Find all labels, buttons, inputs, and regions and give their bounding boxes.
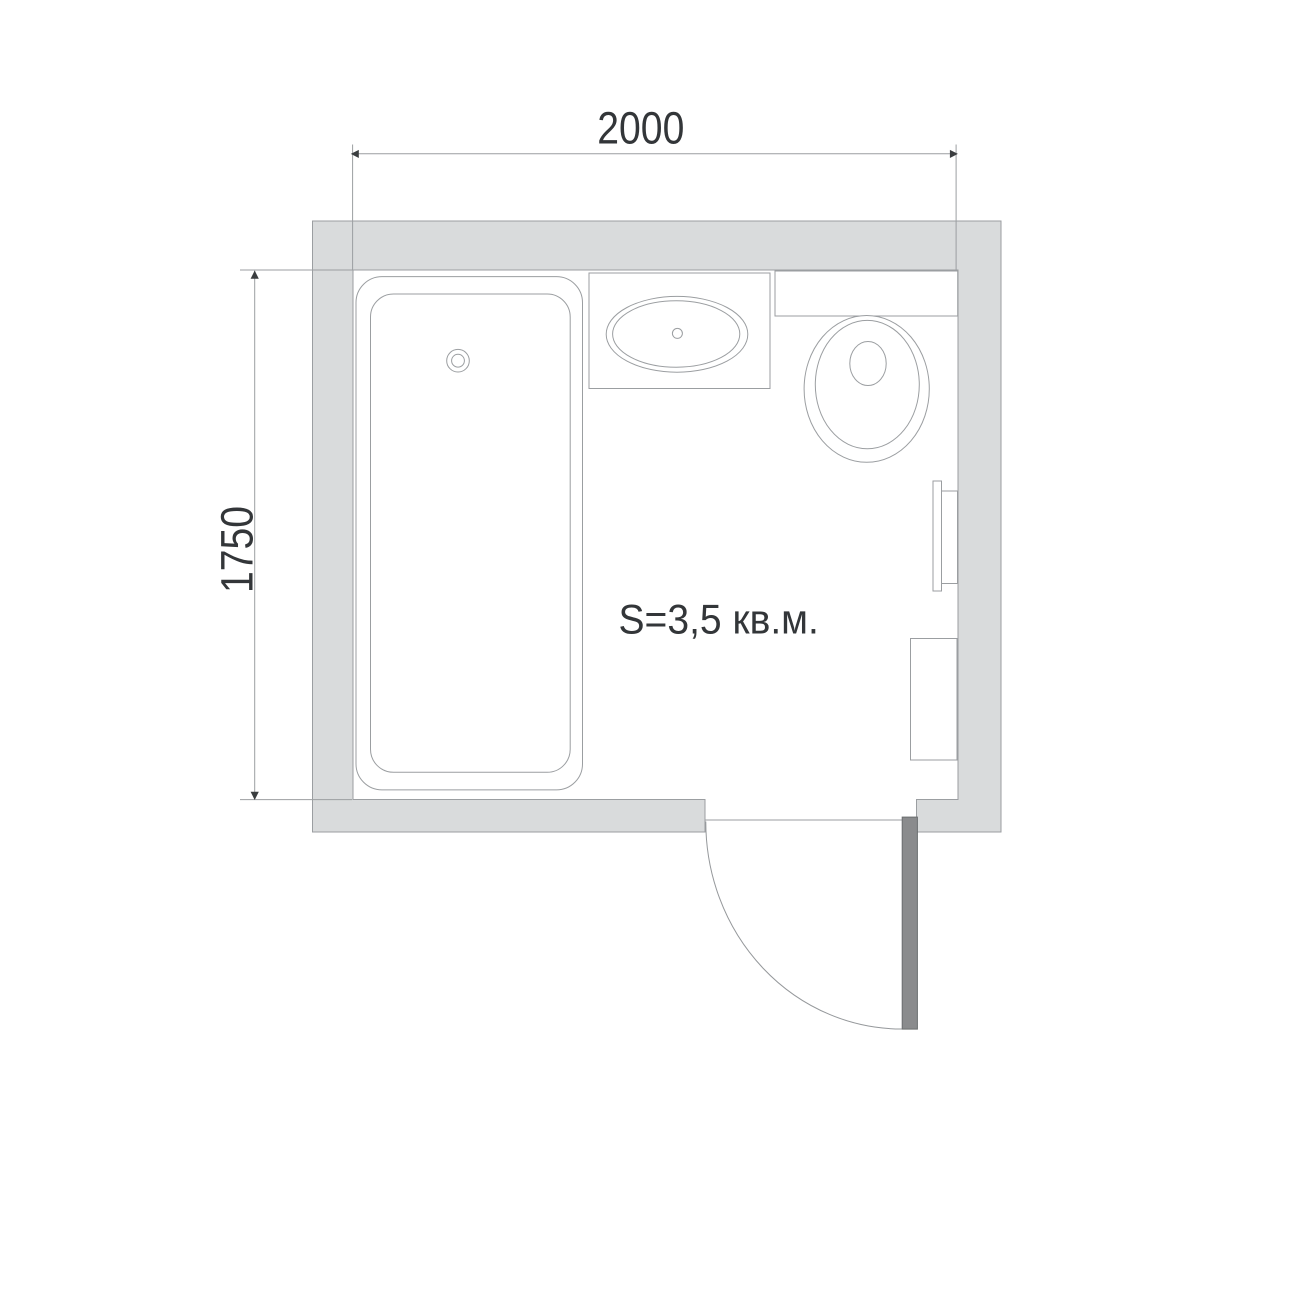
svg-text:1750: 1750 [212, 506, 262, 593]
svg-text:2000: 2000 [597, 103, 684, 153]
svg-text:S=3,5 кв.м.: S=3,5 кв.м. [619, 595, 819, 643]
